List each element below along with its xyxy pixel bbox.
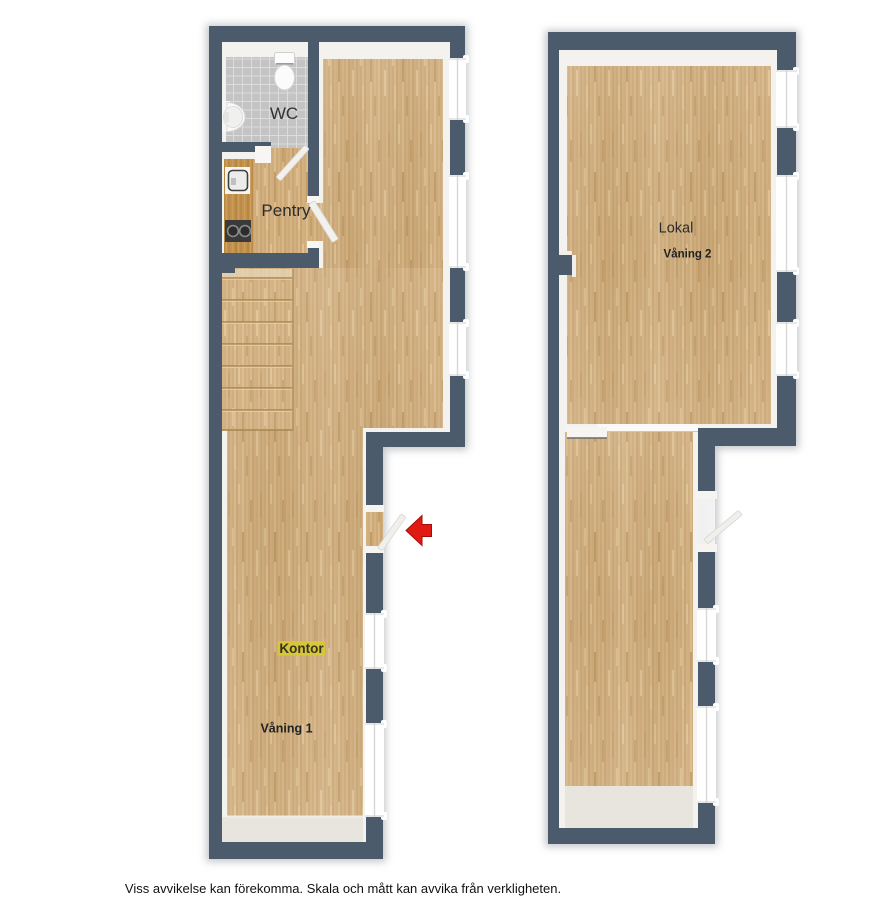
svg-text:Våning 2: Våning 2 <box>664 249 712 261</box>
svg-text:Lokal: Lokal <box>659 221 694 237</box>
svg-text:Viss avvikelse kan förekomma.: Viss avvikelse kan förekomma. Skala och … <box>125 881 561 896</box>
svg-text:Våning 1: Våning 1 <box>260 722 312 736</box>
svg-text:WC: WC <box>270 104 298 123</box>
svg-text:Kontor: Kontor <box>279 641 324 656</box>
svg-text:Pentry: Pentry <box>261 201 311 220</box>
